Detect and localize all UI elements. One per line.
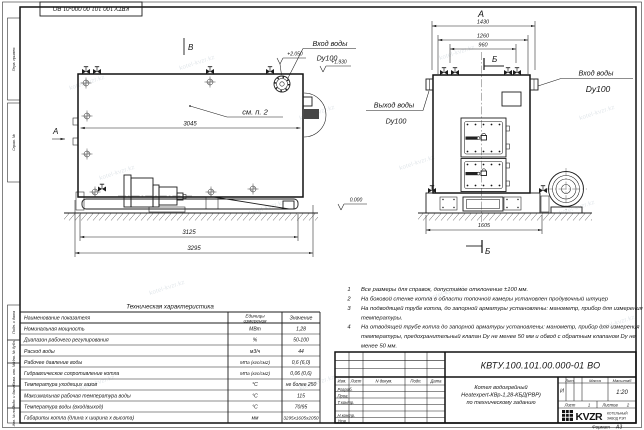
- tb-sheets-value: 2: [626, 403, 630, 408]
- view-title-a: А: [477, 9, 484, 19]
- front-view-annotations: 1430 1260 960 Б Вход воды Dy100 Выход во…: [366, 20, 633, 257]
- tb-col-izm: Изм.: [338, 379, 347, 384]
- spec-row-name: Температура воды (вход/выход): [24, 404, 103, 410]
- plinth: [426, 193, 540, 213]
- spec-row-name: Диапазон рабочего регулирования: [23, 338, 109, 344]
- spec-row-units: °С: [252, 382, 258, 388]
- front-view: А: [418, 9, 592, 222]
- elevation-0000: 0.000: [350, 198, 363, 204]
- tb-role-razrab: Разраб.: [338, 387, 353, 392]
- watermark: kotel-kvzr.kz: [69, 75, 106, 92]
- spec-row-value: 44: [298, 349, 304, 355]
- watermark: kotel-kvzr.kz: [149, 280, 186, 297]
- spec-row-name: Температура уходящих газов: [24, 382, 97, 388]
- valve-icon: [82, 67, 90, 74]
- tb-scale-value: 1:20: [616, 390, 628, 396]
- door-latch: [481, 136, 487, 141]
- spec-row-name: Гидравлическое сопротивление котла: [24, 371, 119, 377]
- tb-role-tkontr: Т.контр.: [338, 400, 355, 405]
- spec-row-value: 115: [297, 393, 305, 399]
- note-number: 4: [347, 325, 350, 331]
- door-latch: [481, 171, 487, 176]
- spec-row-units: м3/ч: [250, 349, 261, 355]
- dim-3295: 3295: [187, 246, 201, 252]
- doc-number: КВТУ.100.101.00.000-01 ВО: [481, 361, 601, 371]
- spec-header-units: измерения: [244, 318, 268, 323]
- spec-header-value: Значение: [290, 316, 313, 322]
- tb-sheets-label: Листов: [601, 403, 618, 408]
- spec-row-value: 3295х1605х2050: [283, 416, 319, 421]
- spec-row-units: мм: [252, 416, 259, 422]
- top-stamp-doc-number: КВТУ.100.101.00.000-01 ВО: [52, 5, 129, 11]
- spec-row-value: 0,06 (0,6): [290, 371, 312, 377]
- note-text: На отводящей трубе котла до запорной арм…: [361, 324, 639, 331]
- tb-role-nkontr: Н.контр.: [338, 413, 356, 418]
- margin-label: Инв. № дубл.: [12, 340, 16, 363]
- inlet-flange: [274, 76, 290, 92]
- spec-row-units: %: [253, 338, 258, 344]
- spec-header-name: Наименование показателя: [24, 316, 90, 322]
- section-mark-b-top: Б: [492, 55, 497, 64]
- tb-lit-label: Лит.: [564, 378, 574, 383]
- product-name-line3: по техническому заданию: [466, 400, 536, 406]
- watermark: kotel-kvzr.kz: [439, 45, 476, 62]
- note-number: 1: [347, 287, 350, 293]
- spec-row-name: Рабочее давление воды: [24, 360, 82, 366]
- kvzr-logo: KVZR КОТЕЛЬНЫЙ ЗАВОД РЭП: [562, 410, 628, 423]
- note-text: На подводящей трубе котла, до запорной а…: [361, 305, 643, 312]
- upper-door: [461, 118, 510, 157]
- tb-sheet-value: 1: [588, 403, 590, 408]
- valve-icon: [266, 67, 274, 74]
- see-note-label: см. п. 2: [242, 108, 268, 117]
- dim-960: 960: [478, 43, 488, 49]
- spec-row-value: 70/95: [295, 404, 308, 410]
- dim-1260: 1260: [477, 34, 490, 40]
- elevation-2050: +2.050: [287, 52, 303, 58]
- format-label: Формат: [592, 425, 610, 430]
- watermark: kotel-kvzr.kz: [399, 155, 436, 172]
- spec-row-units: МПа (кгс/см2): [240, 360, 270, 365]
- sight-glass: [304, 109, 319, 119]
- notes: 1 Все размеры для справок, допустимое от…: [346, 287, 642, 350]
- valve-icon: [206, 67, 214, 74]
- tb-mass-label: Масса: [589, 378, 602, 383]
- tb-sheet-label: Лист: [564, 403, 576, 408]
- position-marker-icon: [82, 149, 93, 160]
- tb-lit-value: И: [560, 389, 564, 395]
- watermark: kotel-kvzr.kz: [99, 165, 136, 182]
- spec-row-name: Максимальная рабочая температура воды: [24, 393, 131, 399]
- outlet-dn-label: Dy100: [386, 117, 407, 126]
- spec-row-value: 0,6 (6,0): [292, 360, 311, 366]
- view-arrow-a: А: [52, 127, 58, 136]
- spec-row-name: Номинальная мощность: [24, 327, 85, 333]
- tb-role-utv: Утв.: [338, 418, 348, 423]
- spec-row-value: 1,28: [296, 327, 306, 333]
- product-name-line1: Котел водогрейный: [474, 384, 527, 391]
- tb-col-sign: Подп.: [410, 379, 421, 384]
- burner-fan-assembly: [118, 175, 192, 212]
- inlet-water-label: Вход воды: [579, 69, 615, 78]
- tb-col-list: Лист: [350, 379, 362, 384]
- outlet-water-label: Выход воды: [374, 101, 415, 110]
- note-text: температуры, предохранительный клапан Dy…: [361, 333, 636, 340]
- drawing-sheet: kotel-kvzr.kz kotel-kvzr.kz kotel-kvzr.k…: [0, 0, 644, 430]
- spec-row-value: 50-100: [293, 338, 309, 344]
- spec-row-units: °С: [252, 393, 258, 399]
- position-marker-icon: [205, 77, 216, 88]
- margin-label: Подп. и дата: [12, 311, 16, 334]
- position-marker-icon: [82, 111, 93, 122]
- section-mark-v: В: [188, 43, 194, 52]
- valve-icon: [451, 68, 459, 75]
- section-mark-b-bottom: Б: [485, 247, 490, 256]
- spec-row-name: Расход воды: [24, 349, 55, 355]
- lower-door: [461, 159, 510, 192]
- tb-col-date: Дата: [429, 379, 442, 384]
- note-number: 3: [347, 306, 351, 312]
- valve-icon: [98, 184, 106, 191]
- format-value: А3: [615, 425, 622, 430]
- note-number: 2: [346, 297, 351, 303]
- dim-3045: 3045: [183, 122, 197, 128]
- tb-role-prov: Пров.: [338, 393, 349, 398]
- logo-subtitle-2: ЗАВОД РЭП: [607, 417, 626, 421]
- inspection-window: [502, 92, 521, 106]
- position-marker-icon: [248, 184, 259, 195]
- door-handle: [466, 137, 478, 140]
- margin-label: Перв. примен.: [12, 47, 16, 72]
- watermark: kotel-kvzr.kz: [579, 105, 616, 122]
- logo-subtitle-1: КОТЕЛЬНЫЙ: [607, 412, 628, 416]
- margin-label: Справ. №: [12, 134, 16, 151]
- dim-1605: 1605: [478, 223, 491, 229]
- margin-label: Взам. инв. №: [12, 363, 16, 386]
- dim-1430: 1430: [477, 20, 490, 26]
- spec-row-units: МПа (кгс/см2): [240, 371, 270, 376]
- valve-icon: [440, 68, 448, 75]
- note-text: менее 50 мм.: [361, 344, 397, 350]
- spec-row-units: МВт: [249, 327, 261, 333]
- product-name-line2: Heatexpert-КВр-1,28-КБД(РВР): [461, 393, 541, 399]
- door-handle: [466, 172, 478, 175]
- position-marker-icon: [206, 187, 217, 198]
- spec-row-value: не более 250: [286, 382, 317, 388]
- note-text: температуры.: [361, 316, 403, 322]
- spec-row-name: Габариты котла (длина х ширина х высота): [24, 416, 134, 422]
- elevation-1930: +1.930: [331, 60, 347, 66]
- side-view: [64, 67, 326, 221]
- margin-label: Инв. № подл.: [12, 405, 16, 427]
- logo-text: KVZR: [576, 411, 604, 423]
- note-text: Все размеры для справок, допустимое откл…: [361, 287, 528, 293]
- note-text: На боковой стенке котла в области топочн…: [361, 296, 609, 303]
- spec-row-units: °С: [252, 404, 258, 410]
- tb-scale-label: Масштаб: [613, 378, 632, 383]
- drawing-svg: kotel-kvzr.kz kotel-kvzr.kz kotel-kvzr.k…: [0, 0, 644, 430]
- boiler-body-side: [78, 74, 303, 197]
- tb-col-doc: N докум.: [376, 379, 393, 384]
- valve-icon: [539, 186, 547, 193]
- inlet-water-label: Вход воды: [313, 39, 349, 48]
- valve-icon: [513, 68, 521, 75]
- valve-icon: [504, 68, 512, 75]
- title-block: КВТУ.100.101.00.000-01 ВО Изм. Лист N до…: [335, 352, 636, 430]
- valve-icon: [93, 67, 101, 74]
- spec-table-title: Техническая характеристика: [126, 304, 214, 311]
- valve-icon: [428, 186, 436, 193]
- dim-3125: 3125: [182, 230, 196, 236]
- inlet-dn-label: Dy100: [586, 84, 611, 94]
- spec-table: Техническая характеристика Наименование …: [20, 304, 320, 424]
